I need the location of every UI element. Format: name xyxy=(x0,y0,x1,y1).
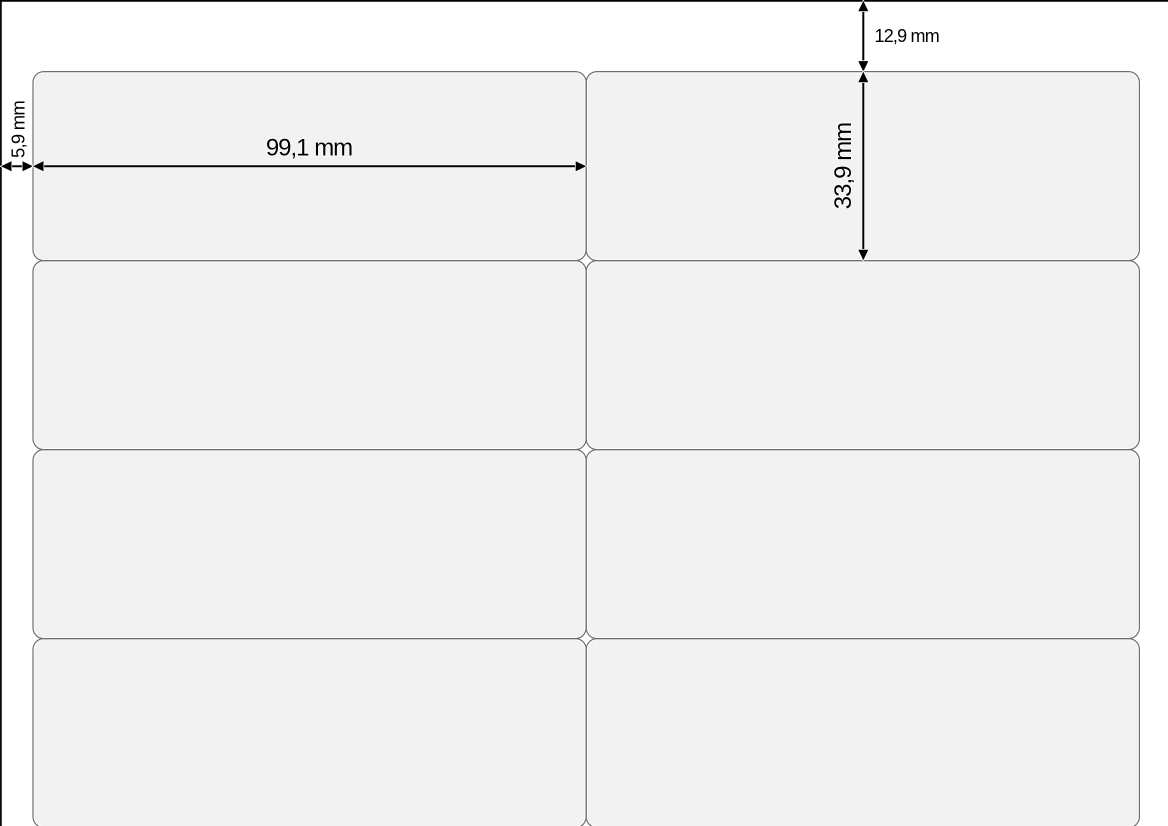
svg-text:5,9 mm: 5,9 mm xyxy=(8,101,29,158)
svg-text:99,1 mm: 99,1 mm xyxy=(266,134,352,161)
svg-text:33,9 mm: 33,9 mm xyxy=(830,123,857,209)
svg-text:12,9 mm: 12,9 mm xyxy=(875,26,939,46)
